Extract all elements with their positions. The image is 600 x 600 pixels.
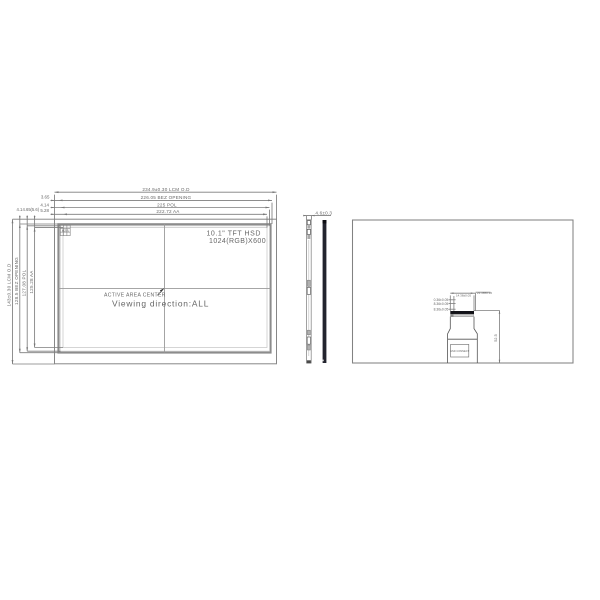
svg-text:125.28 AA: 125.28 AA <box>29 270 34 294</box>
svg-text:1024(RGB)X600: 1024(RGB)X600 <box>209 238 266 245</box>
svg-text:4.6±0.3: 4.6±0.3 <box>315 211 332 216</box>
svg-text:222.72 AA: 222.72 AA <box>156 209 180 214</box>
svg-text:(5.6): (5.6) <box>31 207 40 212</box>
svg-text:234.9±0.30 LCM O.D: 234.9±0.30 LCM O.D <box>142 187 190 192</box>
svg-text:5.28: 5.28 <box>40 208 49 213</box>
svg-text:128.5 BEZ OPENING: 128.5 BEZ OPENING <box>14 257 19 305</box>
svg-text:52.5: 52.5 <box>494 334 498 341</box>
svg-text:HSD CONNECT: HSD CONNECT <box>450 349 469 353</box>
svg-text:Viewing direction:ALL: Viewing direction:ALL <box>112 299 209 309</box>
svg-text:226.05 BEZ OPENING: 226.05 BEZ OPENING <box>141 195 192 200</box>
svg-text:143±0.30 LCM O.D: 143±0.30 LCM O.D <box>7 263 12 307</box>
svg-text:8.36±0.05: 8.36±0.05 <box>434 302 449 306</box>
svg-text:3.65: 3.65 <box>41 194 50 199</box>
svg-text:14.38±0.05: 14.38±0.05 <box>456 293 471 297</box>
svg-text:10.1" TFT HSD: 10.1" TFT HSD <box>206 230 261 237</box>
svg-text:H2B: H2B <box>62 229 70 233</box>
svg-text:21.38±0.10: 21.38±0.10 <box>477 291 492 295</box>
svg-text:127.08 POL: 127.08 POL <box>21 269 26 296</box>
svg-text:225 POL: 225 POL <box>157 202 177 207</box>
svg-text:4.14: 4.14 <box>40 202 49 207</box>
svg-text:8.36±0.05: 8.36±0.05 <box>434 307 449 311</box>
